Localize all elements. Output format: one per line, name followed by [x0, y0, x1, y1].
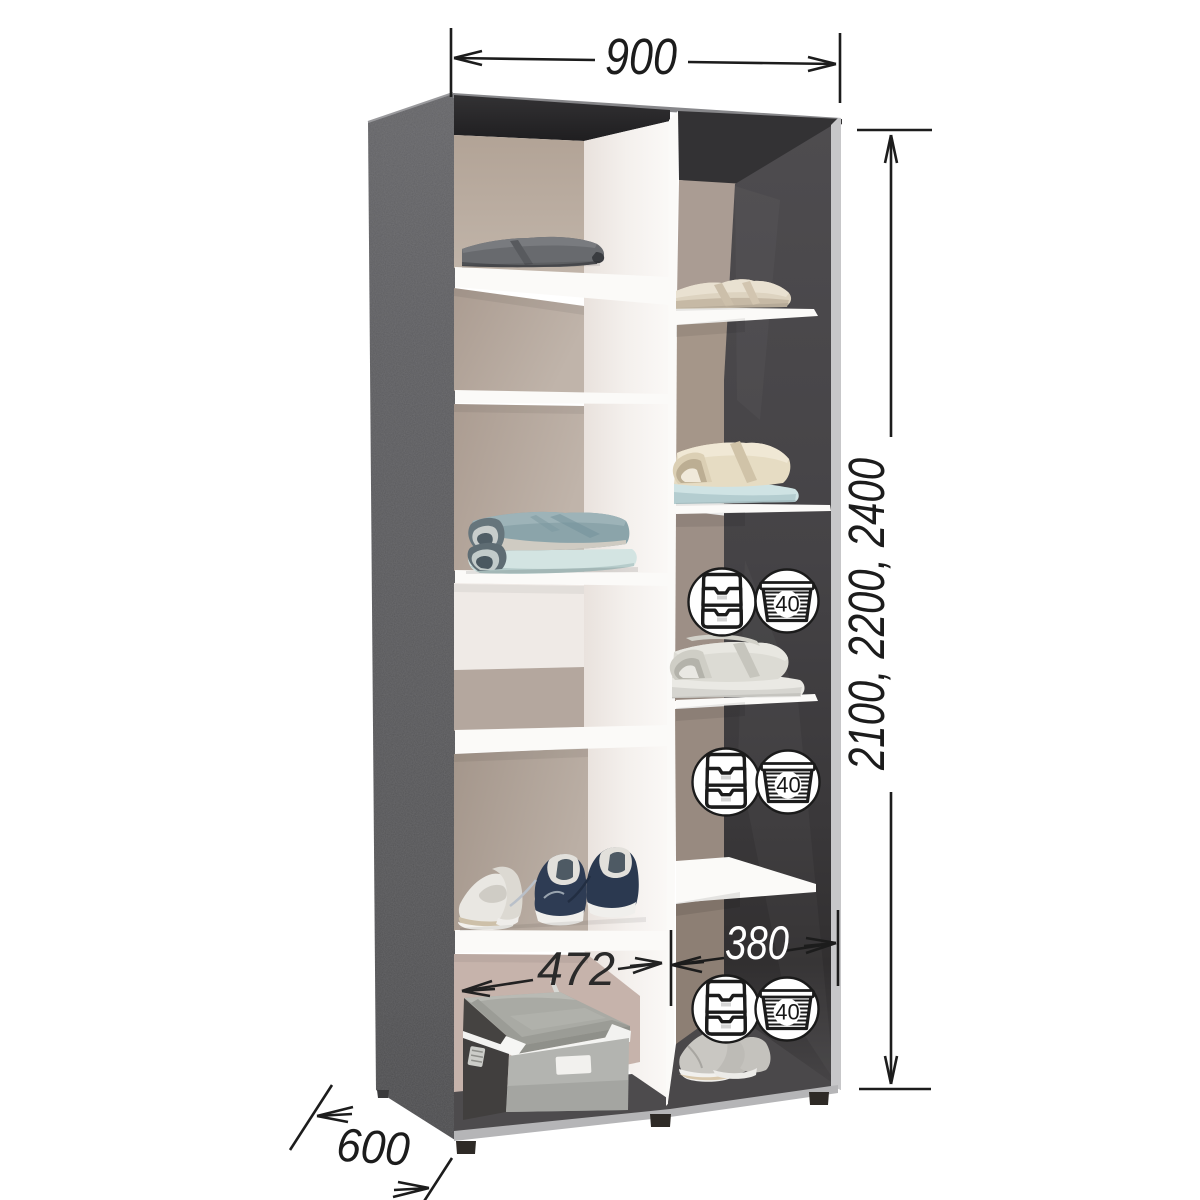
svg-text:2100, 2200, 2400: 2100, 2200, 2400	[838, 458, 895, 771]
svg-text:472: 472	[537, 942, 615, 995]
svg-text:900: 900	[605, 28, 677, 85]
svg-text:380: 380	[725, 916, 789, 969]
svg-text:600: 600	[335, 1118, 412, 1176]
svg-text:40: 40	[775, 592, 799, 617]
